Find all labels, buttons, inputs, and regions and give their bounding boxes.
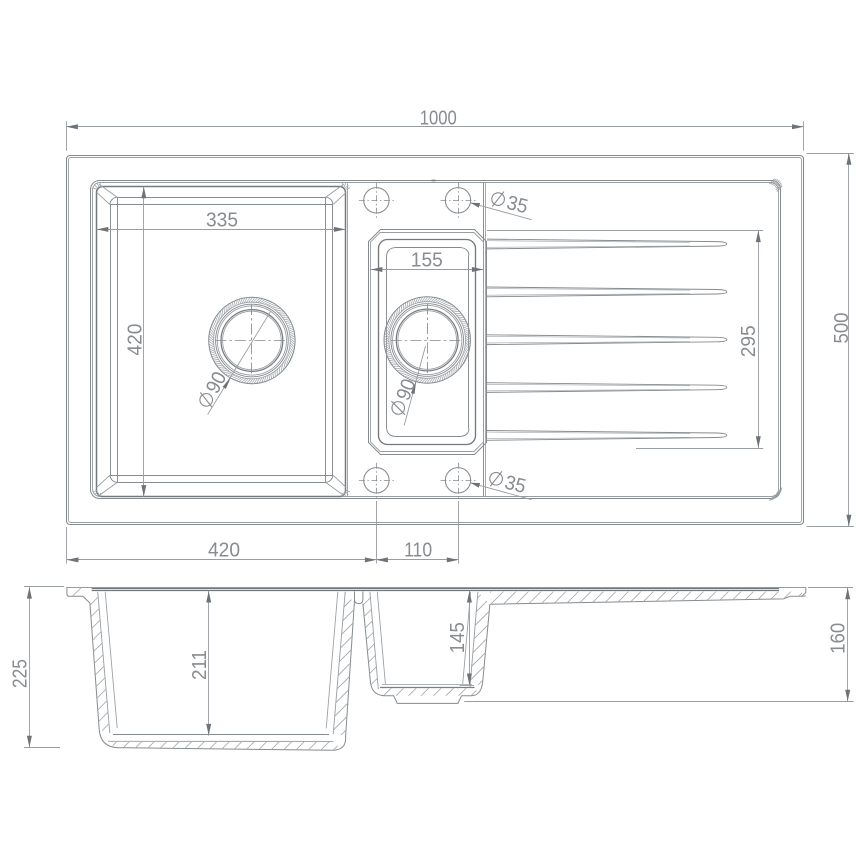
svg-text:420: 420 [124,324,146,356]
svg-text:335: 335 [206,210,238,232]
svg-text:145: 145 [447,622,469,653]
svg-text:225: 225 [10,659,32,688]
svg-text:420: 420 [208,540,240,562]
svg-text:160: 160 [828,623,850,654]
svg-text:1000: 1000 [420,108,457,130]
svg-text:155: 155 [411,249,443,271]
svg-text:500: 500 [831,313,853,344]
svg-text:211: 211 [189,650,211,680]
svg-text:295: 295 [738,325,760,357]
svg-text:110: 110 [404,539,432,561]
